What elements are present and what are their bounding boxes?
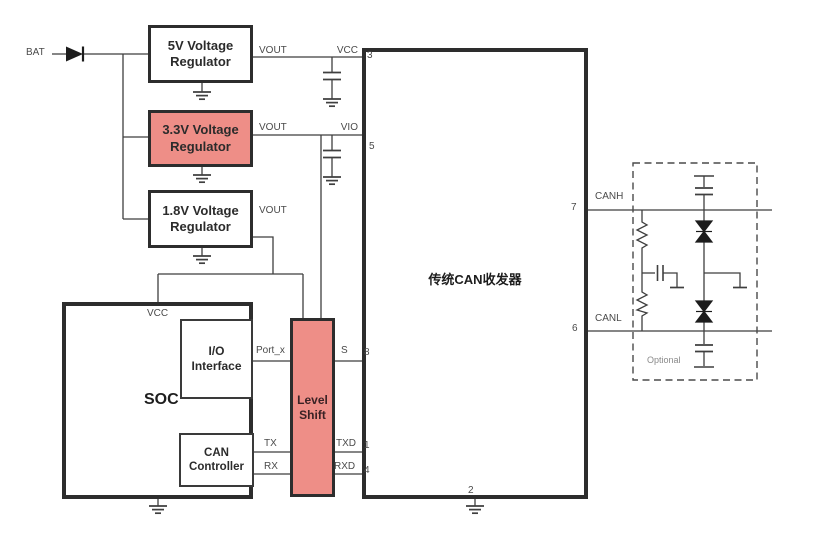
regulator-3v3-label-line2: Regulator: [170, 139, 231, 155]
reverse-diode-icon: [66, 47, 83, 62]
can-controller-label-line1: CAN: [204, 446, 229, 460]
canl-filter-cap-icon: [694, 331, 714, 367]
pin-1-number: 1: [364, 440, 370, 451]
soc-vcc-label: VCC: [147, 308, 168, 319]
io-interface-block: I/O Interface: [180, 319, 253, 399]
bat-wire: [52, 47, 148, 62]
termination-cap-icon: [642, 265, 684, 288]
pin-2-number: 2: [468, 485, 474, 496]
transceiver-ground-icon: [466, 499, 484, 513]
pin-6-number: 6: [572, 323, 578, 334]
pin-vcc-label: VCC: [318, 45, 358, 56]
vcc-decoupling-cap-icon: [323, 57, 341, 106]
reg3v3-vout-label: VOUT: [259, 122, 287, 133]
regulator-1v8-label-line1: 1.8V Voltage: [162, 203, 238, 219]
circuit-diagram: 5V Voltage Regulator 3.3V Voltage Regula…: [0, 0, 820, 542]
level-shift-block: Level Shift: [290, 318, 335, 497]
termination-resistor-bottom-icon: [637, 273, 647, 331]
soc-ground-icon: [149, 499, 167, 513]
pin-canh-label: CANH: [595, 191, 623, 202]
pin-rxd-label: RXD: [334, 461, 355, 472]
pin-7-number: 7: [571, 202, 577, 213]
regulator-5v-block: 5V Voltage Regulator: [148, 25, 253, 83]
level-shift-label-line1: Level: [297, 393, 328, 408]
tx-label: TX: [264, 438, 277, 449]
can-transceiver-title: 传统CAN收发器: [362, 269, 588, 288]
pin-5-number: 5: [369, 141, 375, 152]
io-interface-label-line2: Interface: [191, 359, 241, 374]
vio-decoupling-cap-icon: [323, 135, 341, 184]
pin-txd-label: TXD: [336, 438, 356, 449]
pin-8-number: 8: [364, 347, 370, 358]
tvs-midpoint-ground-wire: [704, 273, 747, 288]
can-controller-block: CAN Controller: [179, 433, 254, 487]
pin-canl-label: CANL: [595, 313, 622, 324]
soc-label: SOC: [144, 391, 179, 409]
regulator-3v3-block: 3.3V Voltage Regulator: [148, 110, 253, 167]
vio-net-wire: [253, 135, 362, 318]
regulator-1v8-block: 1.8V Voltage Regulator: [148, 190, 253, 248]
regulator-5v-label-line1: 5V Voltage: [168, 38, 234, 54]
io-interface-label-line1: I/O: [208, 344, 224, 359]
regulator-5v-label-line2: Regulator: [170, 54, 231, 70]
termination-resistor-top-icon: [637, 210, 647, 273]
pin-s-label: S: [341, 345, 348, 356]
pin-vio-label: VIO: [318, 122, 358, 133]
reg18v-ground-icon: [193, 248, 211, 263]
power-branch-wire: [123, 54, 148, 219]
reg5v-vout-label: VOUT: [259, 45, 287, 56]
port-x-label: Port_x: [256, 345, 285, 356]
optional-box-outline: [633, 163, 757, 380]
reg5v-ground-icon: [193, 83, 211, 99]
canh-filter-cap-icon: [694, 176, 714, 210]
pin-3-number: 3: [367, 50, 373, 61]
tvs-diode-top-icon: [696, 221, 712, 242]
regulator-1v8-label-line2: Regulator: [170, 219, 231, 235]
level-shift-label-line2: Shift: [299, 408, 326, 423]
bat-label: BAT: [26, 47, 45, 58]
pin-4-number: 4: [364, 465, 370, 476]
regulator-3v3-label-line1: 3.3V Voltage: [162, 122, 238, 138]
reg1v8-vout-label: VOUT: [259, 205, 287, 216]
rx-label: RX: [264, 461, 278, 472]
reg33v-ground-icon: [193, 167, 211, 182]
can-controller-label-line2: Controller: [189, 460, 244, 474]
tvs-diode-bottom-icon: [696, 301, 712, 322]
optional-label: Optional: [647, 355, 681, 365]
